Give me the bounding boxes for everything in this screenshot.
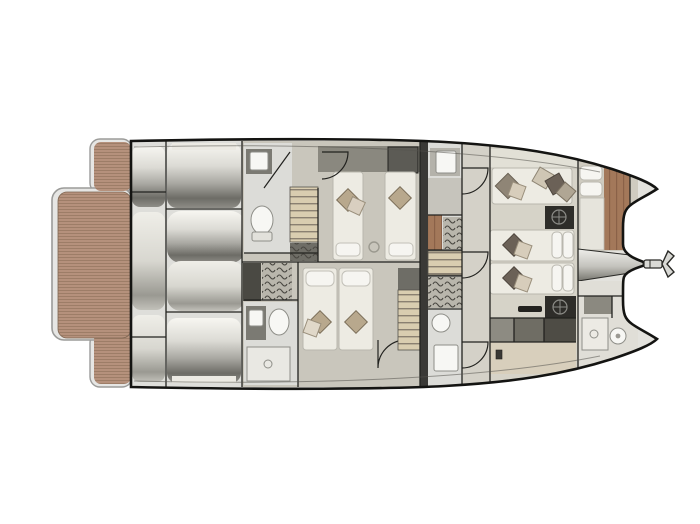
teak-swim-platform xyxy=(58,192,131,338)
pillow-icon xyxy=(336,243,360,256)
garage-roller-icon xyxy=(132,146,165,207)
toilet-icon xyxy=(269,309,289,335)
galley-module xyxy=(514,318,544,342)
bath-cabinet xyxy=(584,296,612,314)
pillow-icon xyxy=(563,232,573,258)
pillow-icon xyxy=(552,265,562,291)
guest-cabin-block xyxy=(242,141,422,387)
mid-service-column xyxy=(428,141,462,387)
sink-icon xyxy=(250,152,268,170)
garage-roller-icon xyxy=(167,261,245,311)
pillow-icon xyxy=(306,271,334,286)
shower-icon xyxy=(428,178,462,215)
hanger-rail-icon xyxy=(428,277,462,308)
bathroom-aft-lower xyxy=(244,302,298,385)
garage-roller-icon xyxy=(167,318,241,383)
pillow-icon xyxy=(580,166,602,180)
utility-locker xyxy=(243,263,261,301)
foredeck-wedge xyxy=(578,249,643,281)
sink-icon xyxy=(434,345,458,371)
sink-icon xyxy=(249,310,263,326)
shower-icon xyxy=(247,347,290,381)
garage-roller-icon xyxy=(167,143,241,208)
sink-icon xyxy=(436,151,456,173)
wood-sole xyxy=(428,215,442,250)
tender-garage xyxy=(131,141,245,387)
toilet-icon xyxy=(251,206,273,234)
bathroom-aft-upper xyxy=(244,143,292,253)
bow-berth-icon xyxy=(580,198,604,250)
hanger-rail-icon xyxy=(290,243,318,261)
corridor xyxy=(462,141,490,387)
pillow-icon xyxy=(563,265,573,291)
hanger-rail-icon xyxy=(443,217,462,249)
galley-module xyxy=(490,318,514,342)
stairs-icon xyxy=(398,290,422,350)
console-bar xyxy=(518,306,542,312)
stairs-icon xyxy=(428,251,462,275)
garage-roller-icon xyxy=(132,212,165,310)
shower-icon xyxy=(582,318,608,350)
hanger-rail-icon xyxy=(262,263,292,301)
anchor-shaft xyxy=(644,260,662,268)
owner-lounge xyxy=(490,141,578,387)
garage-roller-icon xyxy=(167,211,245,263)
galley-module xyxy=(544,318,576,342)
pillow-icon xyxy=(389,243,413,256)
salon-floor-aft xyxy=(490,342,576,374)
yacht-floorplan-canvas xyxy=(0,0,700,524)
pillow-icon xyxy=(580,182,602,196)
toilet-icon xyxy=(616,334,621,339)
pillow-icon xyxy=(552,232,562,258)
pillow-icon xyxy=(342,271,370,286)
aft-swim-platform xyxy=(52,139,132,387)
teak-deck-upper xyxy=(94,142,131,191)
anchor-icon xyxy=(644,251,674,277)
toilet-icon xyxy=(432,314,450,332)
bulkhead xyxy=(420,141,428,387)
toilet-tank xyxy=(252,232,272,241)
anchor-flukes xyxy=(662,251,674,277)
stairs-icon xyxy=(290,187,318,242)
teak-deck-lower xyxy=(94,333,131,384)
deck-fitting-icon xyxy=(496,350,502,359)
garage-roller-icon xyxy=(132,315,165,382)
yacht-floorplan xyxy=(0,0,700,524)
